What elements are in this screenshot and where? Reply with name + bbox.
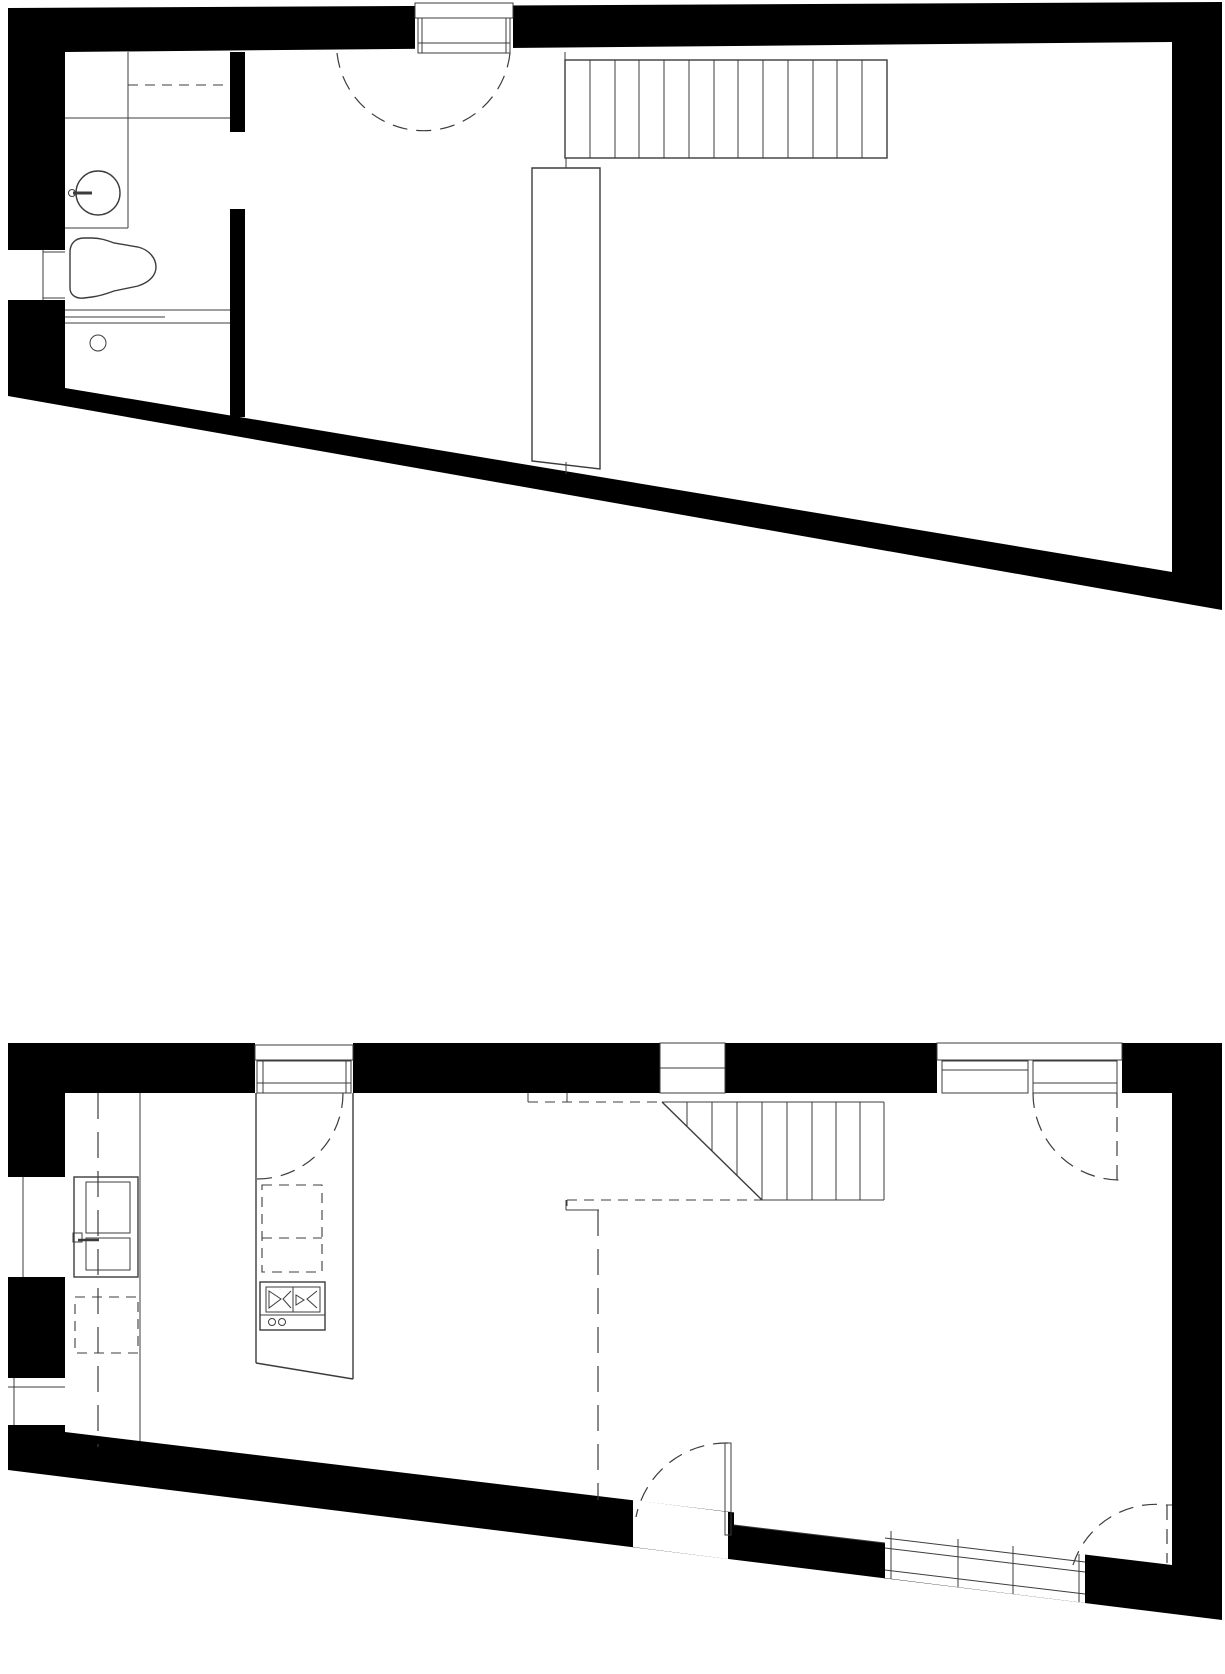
entry-door-opening (8, 1177, 65, 1277)
left-low-opening (8, 1378, 65, 1425)
burner-flame-icon (307, 1291, 317, 1308)
french-window-opening (937, 1043, 1122, 1093)
door-swing-arc (337, 53, 510, 131)
french-door-swing-arc (1033, 1093, 1120, 1180)
floor-plan-sheet (0, 0, 1225, 1674)
partition-wall-lower-stub (230, 209, 245, 417)
wardrobe (532, 168, 600, 474)
floor-plan-svg (0, 0, 1225, 1674)
exterior-walls (8, 1043, 1222, 1620)
bathroom (65, 52, 230, 351)
top-window-opening (415, 2, 513, 53)
stair-treads (590, 60, 862, 158)
control-knob (269, 1319, 276, 1326)
cooktop (260, 1282, 325, 1330)
bottom-window-opening (885, 1530, 1085, 1603)
kitchen-window-opening (255, 1043, 353, 1093)
entry-door-panel-lower (86, 1238, 130, 1270)
entry-door-leaf (74, 1177, 138, 1277)
bottom-door-opening (633, 1500, 728, 1559)
left-wall-opening (8, 250, 65, 300)
control-knob (279, 1319, 286, 1326)
ground-floor-plan (8, 1043, 1222, 1620)
toilet (70, 238, 156, 298)
burner-flame-icon (283, 1291, 291, 1308)
kitchen-door-swing-arc (257, 1093, 343, 1179)
upper-floor-plan (8, 2, 1222, 610)
burner-flame-icon (296, 1295, 304, 1305)
island-slanted-base (256, 1363, 353, 1379)
appliance-projection-dashed-box (75, 1297, 138, 1353)
stair-outline (565, 60, 887, 158)
burner-flame-icon (269, 1291, 281, 1308)
overhead-cabinet-dashed (262, 1185, 322, 1272)
entry-door-panel-upper (86, 1182, 130, 1233)
floor-drain (90, 335, 106, 351)
staircase-lower (528, 1093, 884, 1210)
kitchen-island (256, 1093, 353, 1379)
staircase-upper (565, 52, 887, 168)
partition-wall-upper-stub (230, 52, 245, 132)
